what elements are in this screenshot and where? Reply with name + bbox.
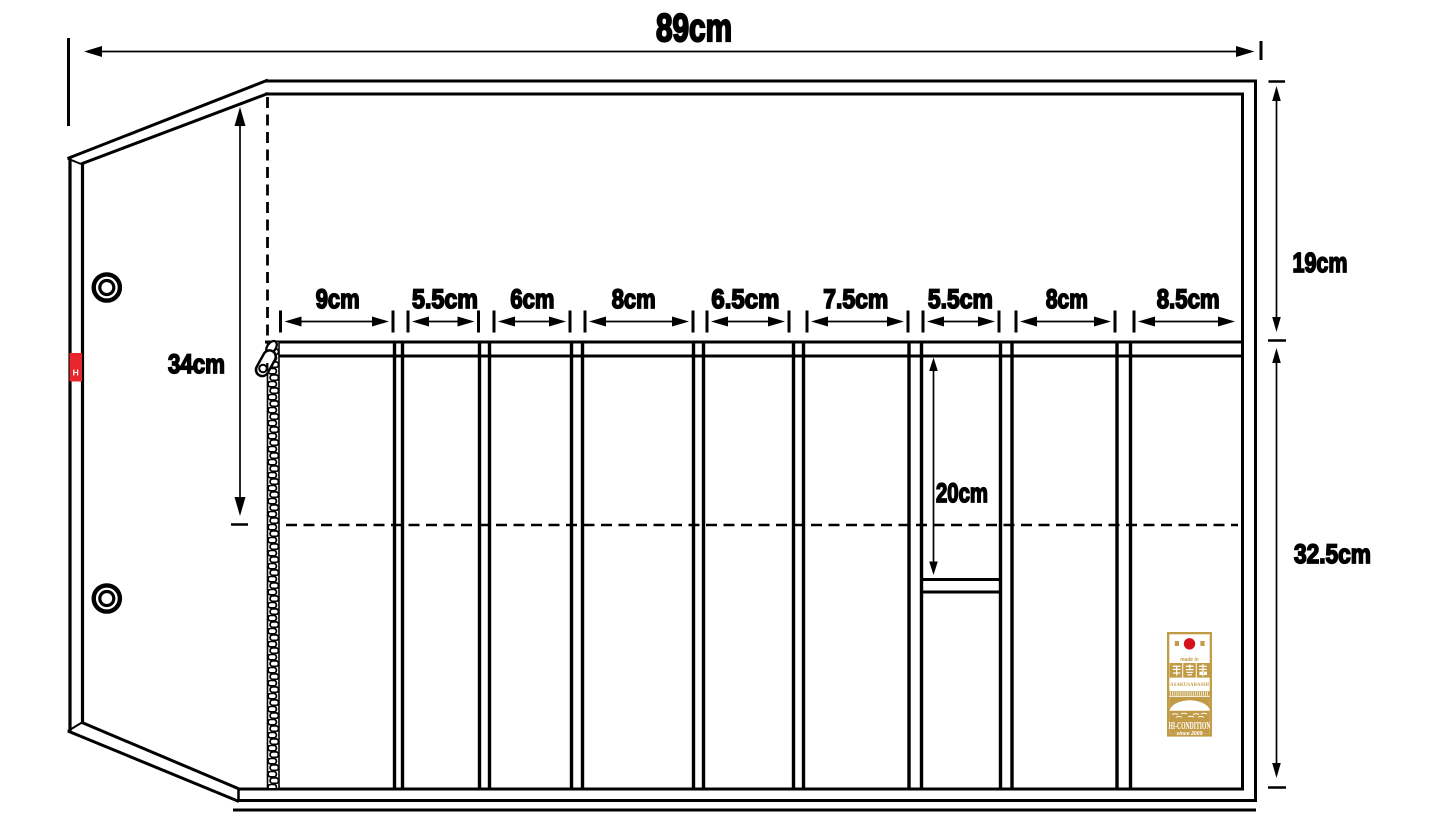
svg-text:89cm: 89cm	[656, 7, 732, 50]
svg-text:20cm: 20cm	[936, 478, 988, 508]
svg-text:5.5cm: 5.5cm	[928, 284, 993, 314]
svg-text:ASAKUSABASHI: ASAKUSABASHI	[1170, 682, 1209, 688]
svg-text:9cm: 9cm	[316, 284, 360, 314]
svg-text:32.5cm: 32.5cm	[1294, 539, 1371, 569]
svg-text:8cm: 8cm	[1046, 284, 1088, 314]
svg-text:7.5cm: 7.5cm	[823, 284, 888, 314]
svg-text:8cm: 8cm	[612, 284, 656, 314]
svg-text:19cm: 19cm	[1293, 247, 1348, 278]
svg-text:made in: made in	[1180, 657, 1199, 663]
svg-text:5.5cm: 5.5cm	[412, 284, 478, 314]
svg-text:8.5cm: 8.5cm	[1157, 284, 1220, 314]
svg-text:6cm: 6cm	[510, 284, 554, 314]
svg-text:H: H	[73, 368, 79, 378]
svg-text:since 2009: since 2009	[1177, 731, 1203, 737]
svg-text:6.5cm: 6.5cm	[711, 284, 779, 314]
svg-text:34cm: 34cm	[168, 349, 225, 379]
